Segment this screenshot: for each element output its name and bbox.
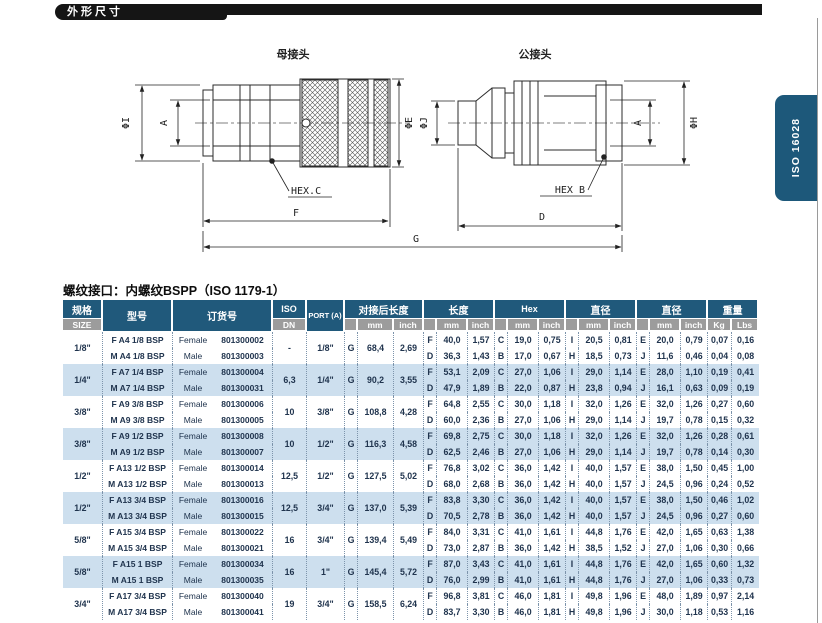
cell: C	[495, 524, 508, 540]
col-header-hex: Hex	[495, 300, 566, 319]
cell: 3/4"	[63, 588, 103, 620]
cell: F A17 3/4 BSP	[103, 588, 173, 604]
cell: 1,06	[539, 412, 566, 428]
cell: 40,0	[579, 508, 610, 524]
table-row: 1/4"F A7 1/4 BSPFemale8013000046,31/4"G9…	[63, 364, 759, 380]
cell: 46,0	[508, 588, 539, 604]
cell: 1,18	[539, 428, 566, 444]
subheader-mm: mm	[437, 319, 468, 332]
cell: H	[566, 380, 579, 396]
cell: 6,3	[273, 364, 307, 396]
cell: E	[637, 460, 650, 476]
cell: 1,61	[539, 572, 566, 588]
cell: 1,18	[539, 396, 566, 412]
cell: 0,60	[732, 396, 759, 412]
cell: 0,14	[708, 444, 732, 460]
cell: 69,8	[437, 428, 468, 444]
cell: 76,8	[437, 460, 468, 476]
cell: 36,0	[508, 540, 539, 556]
cell: 801300008	[213, 428, 273, 444]
cell: 0,30	[708, 540, 732, 556]
cell: Female	[173, 524, 213, 540]
cell: 62,5	[437, 444, 468, 460]
cell: 41,0	[508, 572, 539, 588]
cell: 38,0	[650, 460, 681, 476]
cell: 1,32	[732, 556, 759, 572]
cell: B	[495, 604, 508, 620]
cell: 24,5	[650, 508, 681, 524]
cell: J	[637, 540, 650, 556]
cell: 11,6	[650, 348, 681, 364]
cell: I	[566, 364, 579, 380]
cell: 6,24	[394, 588, 424, 620]
page-border-line	[817, 18, 818, 623]
subheader-mm: mm	[358, 319, 394, 332]
cell: 0,27	[708, 508, 732, 524]
cell: 1,14	[610, 364, 637, 380]
cell: 27,0	[508, 412, 539, 428]
cell: 0,28	[708, 428, 732, 444]
cell: 3,43	[468, 556, 495, 572]
cell: 0,73	[732, 572, 759, 588]
subheader-kg: Kg	[708, 319, 732, 332]
cell: 1,57	[610, 460, 637, 476]
cell: 1,06	[681, 540, 708, 556]
cell: 3,81	[468, 588, 495, 604]
cell: 16,1	[650, 380, 681, 396]
dim-label-phi-h: ΦH	[689, 117, 700, 129]
cell: 30,0	[508, 396, 539, 412]
cell: 1,42	[539, 460, 566, 476]
cell: D	[424, 348, 437, 364]
cell: H	[566, 572, 579, 588]
cell: 1,89	[681, 588, 708, 604]
cell: 83,8	[437, 492, 468, 508]
cell: 801300013	[213, 476, 273, 492]
cell: J	[637, 380, 650, 396]
col-header-iso: ISO	[273, 300, 307, 319]
subheader-blank	[637, 319, 650, 332]
cell: Male	[173, 508, 213, 524]
cell: M A13 3/4 BSP	[103, 508, 173, 524]
cell: 0,30	[732, 444, 759, 460]
cell: D	[424, 444, 437, 460]
cell: F A15 1 BSP	[103, 556, 173, 572]
cell: M A7 1/4 BSP	[103, 380, 173, 396]
cell: E	[637, 332, 650, 348]
cell: 1,42	[539, 492, 566, 508]
cell: 145,4	[358, 556, 394, 588]
cell: 801300005	[213, 412, 273, 428]
thread-note: 螺纹接口：内螺纹BSPP（ISO 1179-1）	[63, 280, 285, 299]
cell: 1,42	[539, 476, 566, 492]
cell: 801300034	[213, 556, 273, 572]
cell: 0,78	[681, 444, 708, 460]
cell: 1,52	[610, 540, 637, 556]
male-coupling-label: 公接头	[519, 47, 552, 61]
cell: 1,26	[681, 428, 708, 444]
subheader-inch: inch	[394, 319, 424, 332]
cell: 801300015	[213, 508, 273, 524]
cell: C	[495, 556, 508, 572]
cell: 36,0	[508, 492, 539, 508]
cell: 5/8"	[63, 524, 103, 556]
cell: 0,24	[708, 476, 732, 492]
cell: 47,9	[437, 380, 468, 396]
cell: 0,67	[539, 348, 566, 364]
header-rule	[222, 4, 762, 15]
cell: I	[566, 332, 579, 348]
cell: 5,39	[394, 492, 424, 524]
cell: E	[637, 556, 650, 572]
cell: 0,19	[732, 380, 759, 396]
subheader-blank	[424, 319, 437, 332]
cell: 0,73	[610, 348, 637, 364]
cell: Female	[173, 332, 213, 348]
cell: 19,7	[650, 412, 681, 428]
cell: E	[637, 524, 650, 540]
cell: 23,8	[579, 380, 610, 396]
subheader-inch: inch	[539, 319, 566, 332]
cell: 801300040	[213, 588, 273, 604]
dim-label-f: F	[293, 208, 299, 219]
cell: Male	[173, 476, 213, 492]
cell: F	[424, 492, 437, 508]
cell: C	[495, 460, 508, 476]
cell: 49,8	[579, 604, 610, 620]
cell: J	[637, 508, 650, 524]
cell: -	[273, 332, 307, 364]
cell: 40,0	[437, 332, 468, 348]
cell: Male	[173, 380, 213, 396]
cell: 108,8	[358, 396, 394, 428]
cell: 801300003	[213, 348, 273, 364]
cell: 3/8"	[63, 428, 103, 460]
cell: 0,78	[681, 412, 708, 428]
cell: Female	[173, 460, 213, 476]
cell: M A17 3/4 BSP	[103, 604, 173, 620]
cell: 38,0	[650, 492, 681, 508]
cell: 2,69	[394, 332, 424, 364]
cell: 1,61	[539, 556, 566, 572]
cell: 1/4"	[307, 364, 345, 396]
cell: 1,26	[610, 396, 637, 412]
col-header-coupled-length: 对接后长度	[345, 300, 424, 319]
cell: B	[495, 444, 508, 460]
cell: H	[566, 508, 579, 524]
cell: 0,08	[732, 348, 759, 364]
cell: 1,89	[468, 380, 495, 396]
cell: D	[424, 604, 437, 620]
cell: 36,0	[508, 476, 539, 492]
subheader-blank	[345, 319, 358, 332]
cell: 1,42	[539, 540, 566, 556]
cell: 90,2	[358, 364, 394, 396]
cell: 0,33	[708, 572, 732, 588]
section-header-bar: 外形尺寸	[55, 4, 227, 20]
cell: 19,7	[650, 444, 681, 460]
cell: I	[566, 428, 579, 444]
cell: G	[345, 588, 358, 620]
cell: 0,41	[732, 364, 759, 380]
cell: 40,0	[579, 492, 610, 508]
cell: 1,38	[732, 524, 759, 540]
cell: D	[424, 380, 437, 396]
cell: 44,8	[579, 572, 610, 588]
cell: B	[495, 476, 508, 492]
cell: 18,5	[579, 348, 610, 364]
cell: 1,61	[539, 524, 566, 540]
cell: 48,0	[650, 588, 681, 604]
cell: 0,09	[708, 380, 732, 396]
table-row: 3/8"F A9 1/2 BSPFemale801300008101/2"G11…	[63, 428, 759, 444]
cell: 801300004	[213, 364, 273, 380]
cell: 0,60	[708, 556, 732, 572]
table-row: 3/4"F A17 3/4 BSPFemale801300040193/4"G1…	[63, 588, 759, 604]
cell: H	[566, 348, 579, 364]
cell: 1/2"	[63, 492, 103, 524]
cell: 1,65	[681, 524, 708, 540]
cell: 801300022	[213, 524, 273, 540]
cell: 2,55	[468, 396, 495, 412]
cell: 801300031	[213, 380, 273, 396]
cell: 2,36	[468, 412, 495, 428]
iso-16028-tab-label: ISO 16028	[790, 118, 802, 177]
hex-c-label: HEX.C	[291, 186, 321, 197]
cell: 158,5	[358, 588, 394, 620]
cell: Male	[173, 444, 213, 460]
cell: H	[566, 540, 579, 556]
cell: G	[345, 396, 358, 428]
subheader-blank	[566, 319, 579, 332]
cell: M A4 1/8 BSP	[103, 348, 173, 364]
cell: G	[345, 332, 358, 364]
cell: 0,96	[681, 476, 708, 492]
cell: J	[637, 412, 650, 428]
cell: 68,4	[358, 332, 394, 364]
cell: 1,16	[732, 604, 759, 620]
cell: 20,0	[650, 332, 681, 348]
cell: F A9 1/2 BSP	[103, 428, 173, 444]
cell: G	[345, 460, 358, 492]
cell: 127,5	[358, 460, 394, 492]
cell: F A4 1/8 BSP	[103, 332, 173, 348]
cell: 1,14	[610, 444, 637, 460]
cell: I	[566, 588, 579, 604]
cell: M A13 1/2 BSP	[103, 476, 173, 492]
cell: 4,58	[394, 428, 424, 460]
cell: C	[495, 364, 508, 380]
cell: 68,0	[437, 476, 468, 492]
cell: 87,0	[437, 556, 468, 572]
cell: 2,78	[468, 508, 495, 524]
subheader-inch: inch	[681, 319, 708, 332]
subheader-dn: DN	[273, 319, 307, 332]
cell: 1,14	[610, 412, 637, 428]
cell: M A9 3/8 BSP	[103, 412, 173, 428]
cell: 1/2"	[307, 428, 345, 460]
cell: 1"	[307, 556, 345, 588]
cell: 2,75	[468, 428, 495, 444]
cell: M A15 3/4 BSP	[103, 540, 173, 556]
cell: G	[345, 556, 358, 588]
cell: 28,0	[650, 364, 681, 380]
cell: D	[424, 572, 437, 588]
female-coupling-label: 母接头	[277, 47, 310, 61]
subheader-lbs: Lbs	[732, 319, 759, 332]
cell: 3,31	[468, 524, 495, 540]
cell: 2,68	[468, 476, 495, 492]
cell: 32,0	[650, 396, 681, 412]
cell: 0,94	[610, 380, 637, 396]
cell: 27,0	[650, 540, 681, 556]
cell: 2,46	[468, 444, 495, 460]
cell: 44,8	[579, 556, 610, 572]
cell: 10	[273, 428, 307, 460]
cell: 36,0	[508, 508, 539, 524]
col-header-model: 型号	[103, 300, 173, 332]
cell: 0,07	[708, 332, 732, 348]
col-header-diameter-2: 直径	[637, 300, 708, 319]
cell: Male	[173, 604, 213, 620]
cell: F A13 1/2 BSP	[103, 460, 173, 476]
cell: 3/4"	[307, 588, 345, 620]
cell: F	[424, 556, 437, 572]
cell: 3,55	[394, 364, 424, 396]
cell: 1,06	[539, 364, 566, 380]
cell: 1/8"	[63, 332, 103, 364]
cell: 38,5	[579, 540, 610, 556]
cell: D	[424, 476, 437, 492]
cell: I	[566, 396, 579, 412]
cell: 16	[273, 524, 307, 556]
cell: 2,09	[468, 364, 495, 380]
cell: M A9 1/2 BSP	[103, 444, 173, 460]
subheader-mm: mm	[508, 319, 539, 332]
cell: 36,3	[437, 348, 468, 364]
cell: E	[637, 588, 650, 604]
cell: 40,0	[579, 460, 610, 476]
cell: F	[424, 364, 437, 380]
cell: 1,06	[681, 572, 708, 588]
subheader-blank	[495, 319, 508, 332]
cell: 0,75	[539, 332, 566, 348]
cell: I	[566, 492, 579, 508]
cell: B	[495, 380, 508, 396]
cell: M A15 1 BSP	[103, 572, 173, 588]
cell: C	[495, 332, 508, 348]
cell: 1,50	[681, 492, 708, 508]
cell: 1,96	[610, 588, 637, 604]
cell: 19,0	[508, 332, 539, 348]
cell: 1,26	[681, 396, 708, 412]
dim-label-a-male: A	[633, 120, 644, 126]
subheader-size-en: SIZE	[63, 319, 103, 332]
cell: 27,0	[508, 364, 539, 380]
cell: 0,53	[708, 604, 732, 620]
cell: 1,76	[610, 556, 637, 572]
cell: 27,0	[508, 444, 539, 460]
cell: 0,15	[708, 412, 732, 428]
table-row: 1/2"F A13 3/4 BSPFemale80130001612,53/4"…	[63, 492, 759, 508]
cell: 0,46	[681, 348, 708, 364]
cell: J	[637, 572, 650, 588]
col-header-order: 订货号	[173, 300, 273, 332]
cell: 42,0	[650, 524, 681, 540]
cell: 0,61	[732, 428, 759, 444]
table-row: 5/8"F A15 1 BSPFemale801300034161"G145,4…	[63, 556, 759, 572]
cell: B	[495, 572, 508, 588]
cell: 22,0	[508, 380, 539, 396]
cell: 0,45	[708, 460, 732, 476]
cell: F	[424, 524, 437, 540]
cell: 1,65	[681, 556, 708, 572]
cell: C	[495, 588, 508, 604]
dim-label-phi-j: ΦJ	[419, 117, 430, 129]
cell: 0,46	[708, 492, 732, 508]
cell: Female	[173, 556, 213, 572]
cell: 0,96	[681, 508, 708, 524]
cell: 32,0	[650, 428, 681, 444]
cell: 1,02	[732, 492, 759, 508]
cell: G	[345, 492, 358, 524]
cell: 44,8	[579, 524, 610, 540]
cell: 0,27	[708, 396, 732, 412]
cell: D	[424, 508, 437, 524]
cell: 1,57	[610, 492, 637, 508]
cell: 1,57	[610, 476, 637, 492]
cell: 29,0	[579, 412, 610, 428]
cell: C	[495, 492, 508, 508]
cell: 76,0	[437, 572, 468, 588]
cell: 20,5	[579, 332, 610, 348]
cell: F A13 3/4 BSP	[103, 492, 173, 508]
cell: I	[566, 524, 579, 540]
cell: 64,8	[437, 396, 468, 412]
cell: 0,87	[539, 380, 566, 396]
cell: 2,99	[468, 572, 495, 588]
cell: 3,30	[468, 492, 495, 508]
cell: B	[495, 508, 508, 524]
iso-16028-tab: ISO 16028	[775, 95, 817, 201]
cell: E	[637, 428, 650, 444]
cell: 137,0	[358, 492, 394, 524]
dim-label-phi-e: ΦE	[404, 117, 415, 129]
cell: Male	[173, 540, 213, 556]
cell: Female	[173, 492, 213, 508]
cell: 801300006	[213, 396, 273, 412]
table-row: 1/2"F A13 1/2 BSPFemale80130001412,51/2"…	[63, 460, 759, 476]
section-title: 外形尺寸	[67, 6, 123, 18]
cell: 801300041	[213, 604, 273, 620]
col-header-weight: 重量	[708, 300, 759, 319]
cell: F A9 3/8 BSP	[103, 396, 173, 412]
cell: 17,0	[508, 348, 539, 364]
cell: B	[495, 540, 508, 556]
cell: 29,0	[579, 444, 610, 460]
cell: Male	[173, 348, 213, 364]
cell: 1/4"	[63, 364, 103, 396]
cell: 0,52	[732, 476, 759, 492]
cell: E	[637, 364, 650, 380]
cell: 10	[273, 396, 307, 428]
cell: 0,66	[732, 540, 759, 556]
cell: 1,26	[610, 428, 637, 444]
cell: 1/2"	[307, 460, 345, 492]
cell: 2,87	[468, 540, 495, 556]
subheader-mm: mm	[579, 319, 610, 332]
cell: 84,0	[437, 524, 468, 540]
